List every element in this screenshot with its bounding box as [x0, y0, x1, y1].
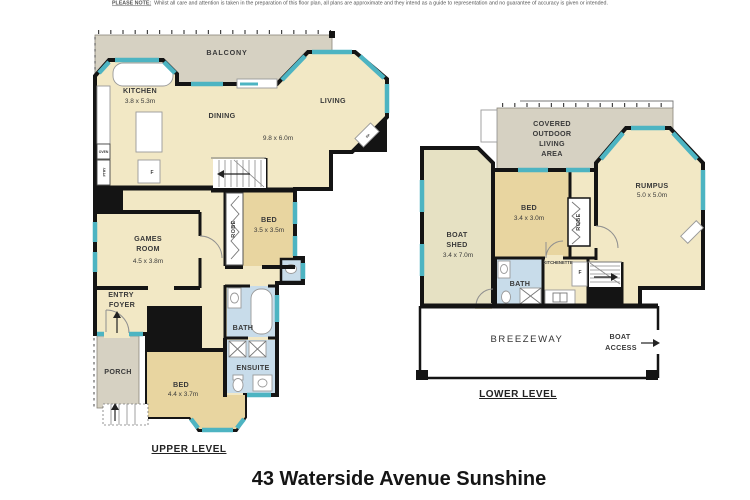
lower-level-plan: ROBE [416, 101, 703, 400]
lower-level-label: LOWER LEVEL [479, 389, 557, 400]
lower-bed-dims: 3.4 x 3.0m [514, 215, 544, 222]
upper-fridge-label: F [150, 170, 153, 176]
kitchen-dims: 3.8 x 5.3m [125, 98, 155, 105]
wall-mass-1 [95, 188, 123, 212]
bed1-dims: 3.5 x 3.5m [254, 227, 284, 234]
kitchen-label: KITCHEN [123, 86, 157, 95]
lower-toilet [502, 291, 511, 303]
page-title: 43 Waterside Avenue Sunshine [252, 468, 547, 490]
bath-label: BATH [233, 323, 254, 332]
bed2-label: BED [173, 380, 189, 389]
boat-access-label-2: ACCESS [605, 343, 637, 352]
bed2-dims: 4.4 x 3.7m [168, 391, 198, 398]
covered-label-1: COVERED [533, 119, 571, 128]
upper-robe-label: ROBE [231, 220, 237, 238]
living-label: LIVING [320, 96, 346, 105]
understair-mass [588, 287, 622, 306]
balcony-label: BALCONY [206, 48, 247, 57]
lower-bath-label: BATH [510, 279, 531, 288]
breezeway-label: BREEZEWAY [491, 334, 564, 345]
covered-label-3: LIVING [539, 139, 565, 148]
covered-notch [481, 110, 497, 142]
entry-label-1: ENTRY [108, 290, 134, 299]
games-label-1: GAMES [134, 234, 162, 243]
dining-label: DINING [209, 111, 236, 120]
covered-roofline [520, 101, 673, 108]
ensuite-label: ENSUITE [236, 363, 269, 372]
balcony-post [329, 31, 335, 38]
boatshed-label-1: BOAT [446, 230, 467, 239]
covered-label-2: OUTDOOR [533, 129, 572, 138]
pantry-label: PTRY [103, 167, 107, 177]
rumpus-dims: 5.0 x 5.0m [637, 192, 667, 199]
lower-fridge-label: F [578, 270, 581, 276]
fridge-nook [138, 160, 160, 183]
lower-robe-label: ROBE [576, 213, 582, 231]
upper-robe: ROBE [226, 193, 243, 265]
upper-level-plan: FP ROBE OVEN PTRY [94, 31, 387, 455]
ensuite-toilet [233, 379, 243, 392]
bathtub [251, 289, 272, 334]
upper-level-label: UPPER LEVEL [152, 444, 227, 455]
disclaimer-prefix: PLEASE NOTE: [112, 1, 151, 7]
boatshed-dims: 3.4 x 7.0m [443, 252, 473, 259]
games-dims: 4.5 x 3.8m [133, 258, 163, 265]
lower-bed-label: BED [521, 203, 537, 212]
rumpus-label: RUMPUS [636, 181, 669, 190]
boat-access-label-1: BOAT [609, 332, 630, 341]
porch-label: PORCH [104, 367, 131, 376]
upper-stairs [211, 158, 266, 188]
lower-stairs [588, 262, 622, 306]
floorplan-image: PLEASE NOTE:Whilst all care and attentio… [0, 0, 750, 500]
porch-steps [103, 403, 148, 425]
oven-label: OVEN [99, 150, 109, 154]
wall-mass-2 [147, 306, 202, 350]
living-dims: 9.8 x 6.0m [263, 135, 293, 142]
lower-robe: ROBE [568, 198, 590, 246]
entry-label-2: FOYER [109, 300, 136, 309]
disclaimer-text: PLEASE NOTE:Whilst all care and attentio… [112, 1, 608, 7]
kitchenette-label: KITCHENETTE [543, 260, 573, 265]
covered-label-4: AREA [541, 149, 563, 158]
boatshed-label-2: SHED [446, 240, 467, 249]
bed1-label: BED [261, 215, 277, 224]
kitchen-island [136, 112, 162, 152]
boat-shed [422, 148, 493, 306]
games-label-2: ROOM [136, 244, 160, 253]
